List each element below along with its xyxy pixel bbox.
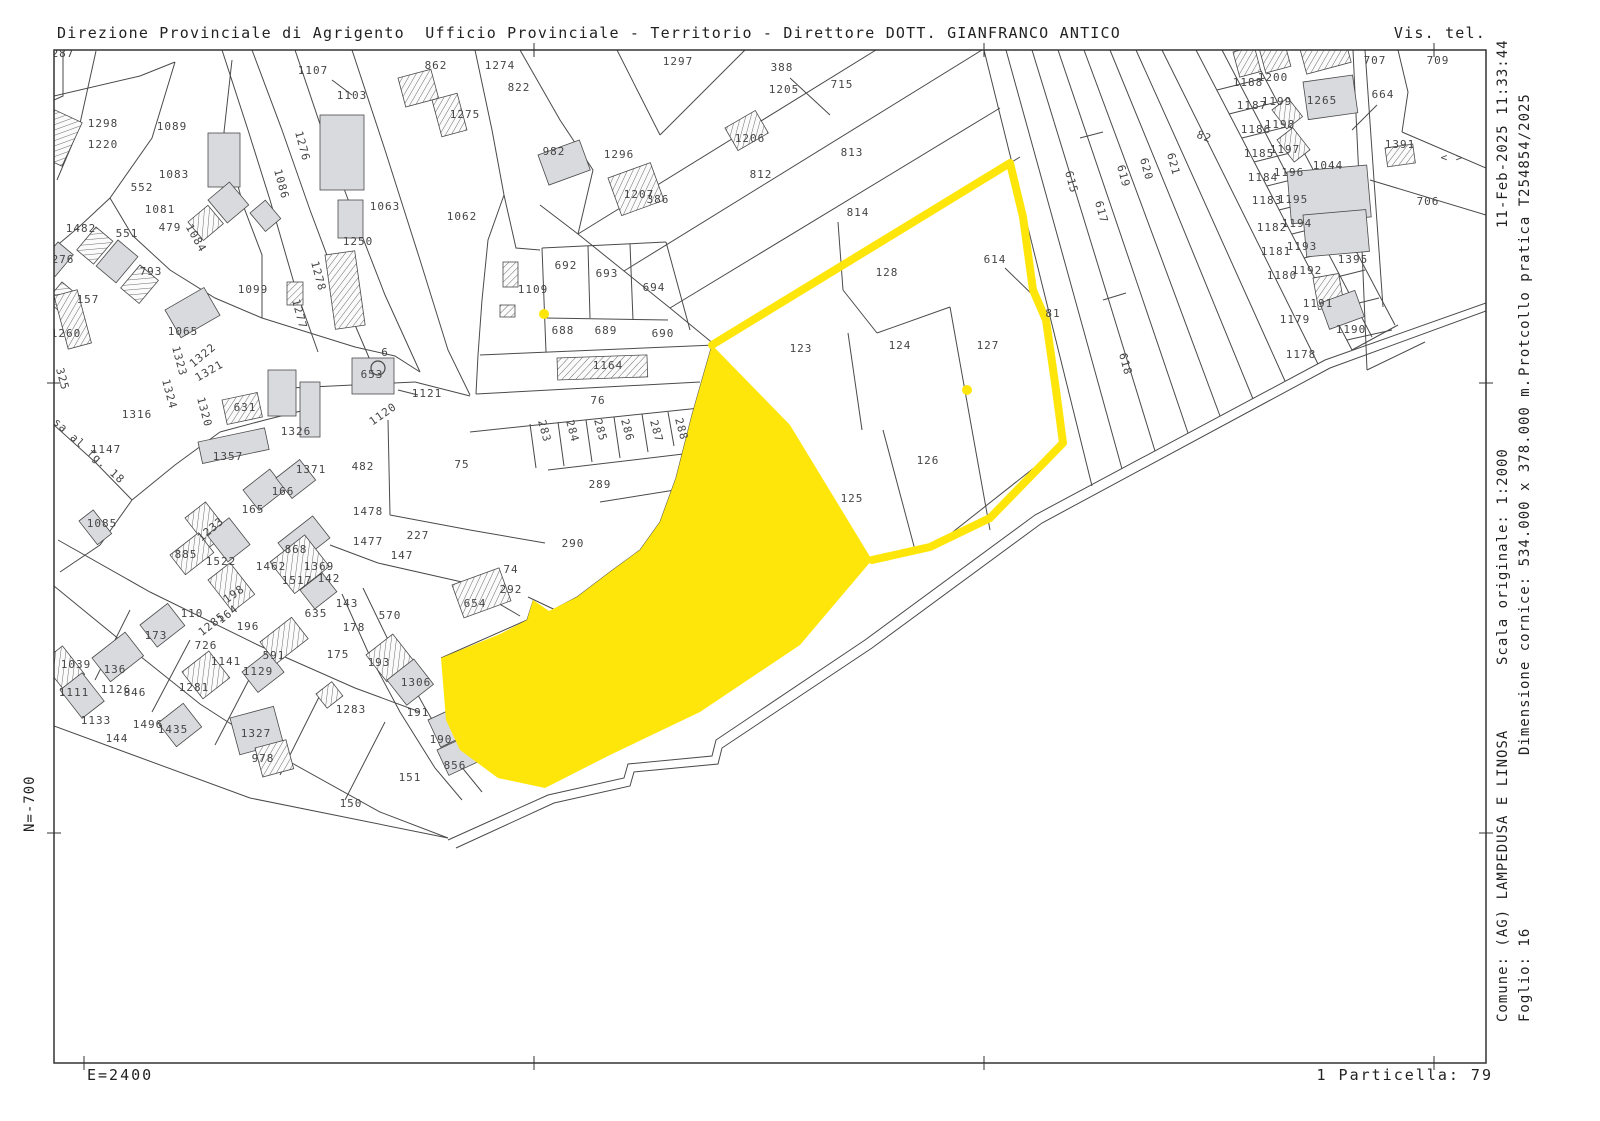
parcel-label: 706 bbox=[1417, 195, 1440, 208]
parcel-label: 76 bbox=[590, 394, 605, 407]
cadastral-map[interactable]: 2878621274822110711031297388715120512981… bbox=[0, 0, 1600, 1121]
parcel-boundary bbox=[642, 414, 648, 452]
parcel-label: 693 bbox=[596, 267, 619, 280]
parcel-label: 1316 bbox=[122, 408, 153, 421]
parcel-label: 868 bbox=[285, 543, 308, 556]
parcel-boundary bbox=[624, 50, 982, 271]
parcel-label: 692 bbox=[555, 259, 578, 272]
parcel-label: 1371 bbox=[296, 463, 327, 476]
parcel-label: 287 bbox=[647, 418, 665, 443]
parcel-boundary bbox=[630, 244, 633, 320]
parcel-label: 482 bbox=[352, 460, 375, 473]
parcel-boundary bbox=[950, 307, 972, 430]
parcel-boundary bbox=[617, 50, 660, 135]
parcel-label: 635 bbox=[305, 607, 328, 620]
parcel-label: 709 bbox=[1427, 54, 1450, 67]
building-hatched bbox=[1258, 37, 1291, 73]
parcel-label: 1324 bbox=[159, 378, 179, 411]
parcel-label: 812 bbox=[750, 168, 773, 181]
parcel-label: 74 bbox=[503, 563, 518, 576]
parcel-label: 1200 bbox=[1258, 71, 1289, 84]
parcel-boundary bbox=[152, 640, 190, 712]
parcel-label: 1065 bbox=[168, 325, 199, 338]
parcel-boundary bbox=[984, 50, 1092, 486]
parcel-boundary bbox=[883, 430, 915, 550]
parcel-boundary bbox=[54, 62, 175, 248]
parcel-boundary bbox=[666, 242, 690, 330]
parcel-label: 290 bbox=[562, 537, 585, 550]
highlight-dot bbox=[539, 309, 549, 319]
highlight-dot bbox=[962, 385, 972, 395]
parcel-label: 1178 bbox=[1286, 348, 1317, 361]
parcel-boundary bbox=[670, 108, 1000, 308]
parcel-boundary bbox=[588, 246, 590, 318]
parcel-label: 1395 bbox=[1338, 253, 1369, 266]
parcel-boundary bbox=[480, 345, 715, 355]
parcel-label: 1278 bbox=[308, 260, 328, 293]
parcel-label: 1522 bbox=[206, 555, 237, 568]
parcel-label: 1044 bbox=[1313, 159, 1344, 172]
parcel-label: 715 bbox=[831, 78, 854, 91]
parcel-label: 193 bbox=[368, 656, 391, 669]
parcel-boundary bbox=[843, 290, 877, 333]
parcel-label: 190 bbox=[430, 733, 453, 746]
parcel-label: 1179 bbox=[1280, 313, 1311, 326]
parcel-label: 631 bbox=[234, 401, 257, 414]
particella-label: 1 Particella: 79 bbox=[1317, 1066, 1494, 1084]
parcel-label: 620 bbox=[1137, 156, 1155, 181]
parcel-label: 793 bbox=[140, 265, 163, 278]
building-gray bbox=[250, 200, 281, 231]
parcel-label: 688 bbox=[552, 324, 575, 337]
protocollo-label: Protcollo pratica T254854/2025 bbox=[1517, 93, 1533, 376]
parcel-label: 286 bbox=[618, 417, 636, 442]
parcel-label: 1141 bbox=[211, 655, 242, 668]
parcel-label: 1194 bbox=[1282, 217, 1313, 230]
parcel-label: 617 bbox=[1092, 199, 1110, 224]
parcel-boundary bbox=[54, 62, 175, 96]
parcel-label: 1206 bbox=[735, 132, 766, 145]
parcel-label: 81 bbox=[1045, 307, 1060, 320]
parcel-label: 1063 bbox=[370, 200, 401, 213]
building-gray bbox=[268, 370, 296, 416]
parcel-label: 1196 bbox=[1274, 166, 1305, 179]
comune-label: Comune: (AG) LAMPEDUSA E LINOSA bbox=[1495, 730, 1511, 1022]
parcel-label: 1039 bbox=[61, 658, 92, 671]
building-gray bbox=[320, 115, 364, 190]
parcel-label: 151 bbox=[399, 771, 422, 784]
parcel-label: 822 bbox=[508, 81, 531, 94]
parcel-label: 110 bbox=[181, 607, 204, 620]
parcel-boundary bbox=[1084, 50, 1220, 416]
parcel-label: 618 bbox=[1116, 351, 1134, 376]
parcel-label: 1265 bbox=[1307, 94, 1338, 107]
foglio-label: Foglio: 16 bbox=[1517, 928, 1533, 1022]
parcel-boundary bbox=[475, 50, 540, 250]
parcel-boundary bbox=[542, 242, 666, 248]
parcel-boundary bbox=[1032, 50, 1155, 451]
parcel-boundary bbox=[390, 515, 470, 530]
parcel-label: 614 bbox=[984, 253, 1007, 266]
parcel-label: 653 bbox=[361, 368, 384, 381]
parcel-label: 1103 bbox=[337, 89, 368, 102]
parcel-label: 1281 bbox=[179, 681, 210, 694]
parcel-label: 654 bbox=[464, 597, 487, 610]
parcel-label: 591 bbox=[263, 649, 286, 662]
building-hatched bbox=[503, 262, 518, 287]
parcel-label: 846 bbox=[124, 686, 147, 699]
scala-label: Scala originale: 1:2000 bbox=[1495, 448, 1511, 665]
parcel-label: 862 bbox=[425, 59, 448, 72]
parcel-label: 1220 bbox=[88, 138, 119, 151]
parcel-label: 1062 bbox=[447, 210, 478, 223]
parcel-label: 1133 bbox=[81, 714, 112, 727]
parcel-label: 1099 bbox=[238, 283, 269, 296]
parcel-label: 288 bbox=[672, 416, 690, 441]
parcel-label: 1275 bbox=[450, 108, 481, 121]
parcel-label: 1197 bbox=[1270, 143, 1301, 156]
parcel-label: 694 bbox=[643, 281, 666, 294]
parcel-label: 276 bbox=[52, 253, 75, 266]
parcel-boundary bbox=[1006, 50, 1122, 469]
parcel-boundary bbox=[470, 408, 700, 432]
parcel-label: 1482 bbox=[66, 222, 97, 235]
parcel-label: 147 bbox=[391, 549, 414, 562]
parcel-boundary bbox=[668, 412, 674, 446]
parcel-label: 292 bbox=[500, 583, 523, 596]
parcel-label: 1199 bbox=[1262, 95, 1293, 108]
building-hatched bbox=[1300, 37, 1351, 74]
parcel-boundary bbox=[378, 563, 462, 582]
cadastral-map-viewer: Direzione Provinciale di Agrigento Uffic… bbox=[0, 0, 1600, 1121]
parcel-label: 615 bbox=[1062, 169, 1080, 194]
parcel-label: 1260 bbox=[51, 327, 82, 340]
parcel-label: 1085 bbox=[87, 517, 118, 530]
parcel-boundary bbox=[388, 420, 390, 515]
parcel-label: 150 bbox=[340, 797, 363, 810]
parcel-boundary bbox=[558, 422, 564, 466]
cornice-label: Dimensione cornice: 534.000 x 378.000 m. bbox=[1517, 378, 1533, 755]
parcel-label: 289 bbox=[589, 478, 612, 491]
parcel-label: 621 bbox=[1164, 151, 1182, 176]
parcel-label: 814 bbox=[847, 206, 870, 219]
parcel-label: 1086 bbox=[271, 168, 291, 201]
parcel-label: 479 bbox=[159, 221, 182, 234]
parcel-label: 1198 bbox=[1265, 118, 1296, 131]
parcel-label: 1164 bbox=[593, 359, 624, 372]
parcel-label: 136 bbox=[104, 663, 127, 676]
parcel-label: 1462 bbox=[256, 560, 287, 573]
parcel-boundary bbox=[586, 420, 592, 462]
parcel-label: 1205 bbox=[769, 83, 800, 96]
parcel-label: 124 bbox=[889, 339, 912, 352]
parcel-label: 82 bbox=[1195, 128, 1214, 145]
parcel-boundary bbox=[548, 452, 700, 470]
parcel-label: 813 bbox=[841, 146, 864, 159]
parcel-label: 1193 bbox=[1287, 240, 1318, 253]
parcel-label: 388 bbox=[771, 61, 794, 74]
parcel-label: 287 bbox=[52, 47, 75, 60]
coordinate-label-north: N=-700 bbox=[22, 775, 38, 832]
parcel-label: 1296 bbox=[604, 148, 635, 161]
parcel-label: 125 bbox=[841, 492, 864, 505]
parcel-label: 1274 bbox=[485, 59, 516, 72]
parcel-label: 191 bbox=[407, 706, 430, 719]
parcel-label: 157 bbox=[77, 293, 100, 306]
parcel-boundary bbox=[877, 307, 950, 333]
building-hatched bbox=[325, 251, 365, 329]
parcel-label: 1306 bbox=[401, 676, 432, 689]
parcel-label: 1517 bbox=[282, 574, 313, 587]
parcel-label: 1277 bbox=[289, 298, 309, 331]
parcel-label: 128 bbox=[876, 266, 899, 279]
parcel-label: 1120 bbox=[367, 400, 399, 428]
parcel-boundary bbox=[1080, 132, 1103, 138]
parcel-label: 227 bbox=[407, 529, 430, 542]
parcel-boundary bbox=[530, 424, 536, 468]
parcel-boundary bbox=[520, 50, 593, 234]
parcel-label: 1478 bbox=[353, 505, 384, 518]
parcel-label: 619 bbox=[1114, 163, 1132, 188]
parcel-label: 1298 bbox=[88, 117, 119, 130]
parcel-label: 1129 bbox=[243, 665, 274, 678]
parcel-label: 178 bbox=[343, 621, 366, 634]
parcel-label: 1190 bbox=[1336, 323, 1367, 336]
parcel-label: 1323 bbox=[169, 345, 189, 378]
parcel-boundary bbox=[470, 530, 545, 543]
parcel-label: 1357 bbox=[213, 450, 244, 463]
parcel-label: 1327 bbox=[241, 727, 272, 740]
parcel-boundary bbox=[1110, 50, 1253, 399]
parcel-label: 175 bbox=[327, 648, 350, 661]
parcel-label: 1435 bbox=[158, 723, 189, 736]
parcel-label: 885 bbox=[175, 548, 198, 561]
parcel-label: < > bbox=[1441, 151, 1464, 164]
parcel-label: 1283 bbox=[336, 703, 367, 716]
parcel-label: 75 bbox=[454, 458, 469, 471]
timestamp-label: 11-Feb-2025 11:33:44 bbox=[1495, 39, 1511, 228]
parcel-label: 1391 bbox=[1385, 138, 1416, 151]
parcel-label: 1477 bbox=[353, 535, 384, 548]
parcel-label: 551 bbox=[116, 227, 139, 240]
parcel-label: 552 bbox=[131, 181, 154, 194]
building-hatched bbox=[35, 110, 82, 166]
parcel-label: 978 bbox=[252, 752, 275, 765]
parcel-label: 126 bbox=[917, 454, 940, 467]
parcel-boundary bbox=[345, 722, 385, 800]
parcel-label: 1121 bbox=[412, 387, 443, 400]
parcel-label: 123 bbox=[790, 342, 813, 355]
parcel-label: 1276 bbox=[292, 130, 312, 163]
parcel-label: 1195 bbox=[1278, 193, 1309, 206]
parcel-label: 173 bbox=[145, 629, 168, 642]
parcel-label: 284 bbox=[563, 418, 581, 443]
parcel-label: 856 bbox=[444, 759, 467, 772]
parcel-label: 1297 bbox=[663, 55, 694, 68]
parcel-label: 1111 bbox=[59, 686, 90, 699]
parcel-label: 283 bbox=[535, 418, 553, 443]
parcel-label: 166 bbox=[272, 485, 295, 498]
parcel-label: 142 bbox=[318, 572, 341, 585]
parcel-label: 1320 bbox=[194, 396, 214, 429]
parcel-label: 1250 bbox=[343, 235, 374, 248]
map-content: 2878621274822110711031297388715120512981… bbox=[34, 37, 1486, 848]
parcel-label: 1191 bbox=[1303, 297, 1334, 310]
parcel-boundary bbox=[1398, 50, 1408, 132]
parcel-label: 689 bbox=[595, 324, 618, 337]
parcel-label: 386 bbox=[647, 193, 670, 206]
parcel-boundary bbox=[872, 445, 1063, 562]
parcel-label: 1326 bbox=[281, 425, 312, 438]
parcel-boundary bbox=[1367, 342, 1425, 370]
parcel-label: 726 bbox=[195, 639, 218, 652]
parcel-boundary bbox=[476, 195, 504, 394]
parcel-label: 1083 bbox=[159, 168, 190, 181]
parcel-label: 707 bbox=[1364, 54, 1387, 67]
parcel-boundary bbox=[448, 303, 1486, 840]
parcel-boundary bbox=[546, 318, 668, 320]
parcel-label: 1109 bbox=[518, 283, 549, 296]
coordinate-label-east: E=2400 bbox=[87, 1066, 153, 1084]
parcel-label: 285 bbox=[591, 417, 609, 442]
parcel-label: 1107 bbox=[298, 64, 329, 77]
parcel-label: 982 bbox=[543, 145, 566, 158]
parcel-label: 1081 bbox=[145, 203, 176, 216]
parcel-boundary bbox=[848, 333, 862, 430]
parcel-boundary bbox=[476, 382, 700, 394]
building-gray bbox=[208, 133, 240, 187]
parcel-label: 6 bbox=[381, 346, 389, 359]
parcel-label: 1192 bbox=[1292, 264, 1323, 277]
parcel-label: 664 bbox=[1372, 88, 1395, 101]
parcel-label: 1089 bbox=[157, 120, 188, 133]
parcel-label: 196 bbox=[237, 620, 260, 633]
parcel-label: 127 bbox=[977, 339, 1000, 352]
building-hatched bbox=[500, 305, 515, 317]
parcel-label: 570 bbox=[379, 609, 402, 622]
building-gray bbox=[338, 200, 363, 238]
parcel-boundary bbox=[542, 248, 546, 352]
parcel-label: 690 bbox=[652, 327, 675, 340]
parcel-boundary bbox=[838, 222, 843, 290]
parcel-label: 143 bbox=[336, 597, 359, 610]
parcel-label: 165 bbox=[242, 503, 265, 516]
parcel-label: 325 bbox=[53, 366, 71, 391]
parcel-label: 144 bbox=[106, 732, 129, 745]
